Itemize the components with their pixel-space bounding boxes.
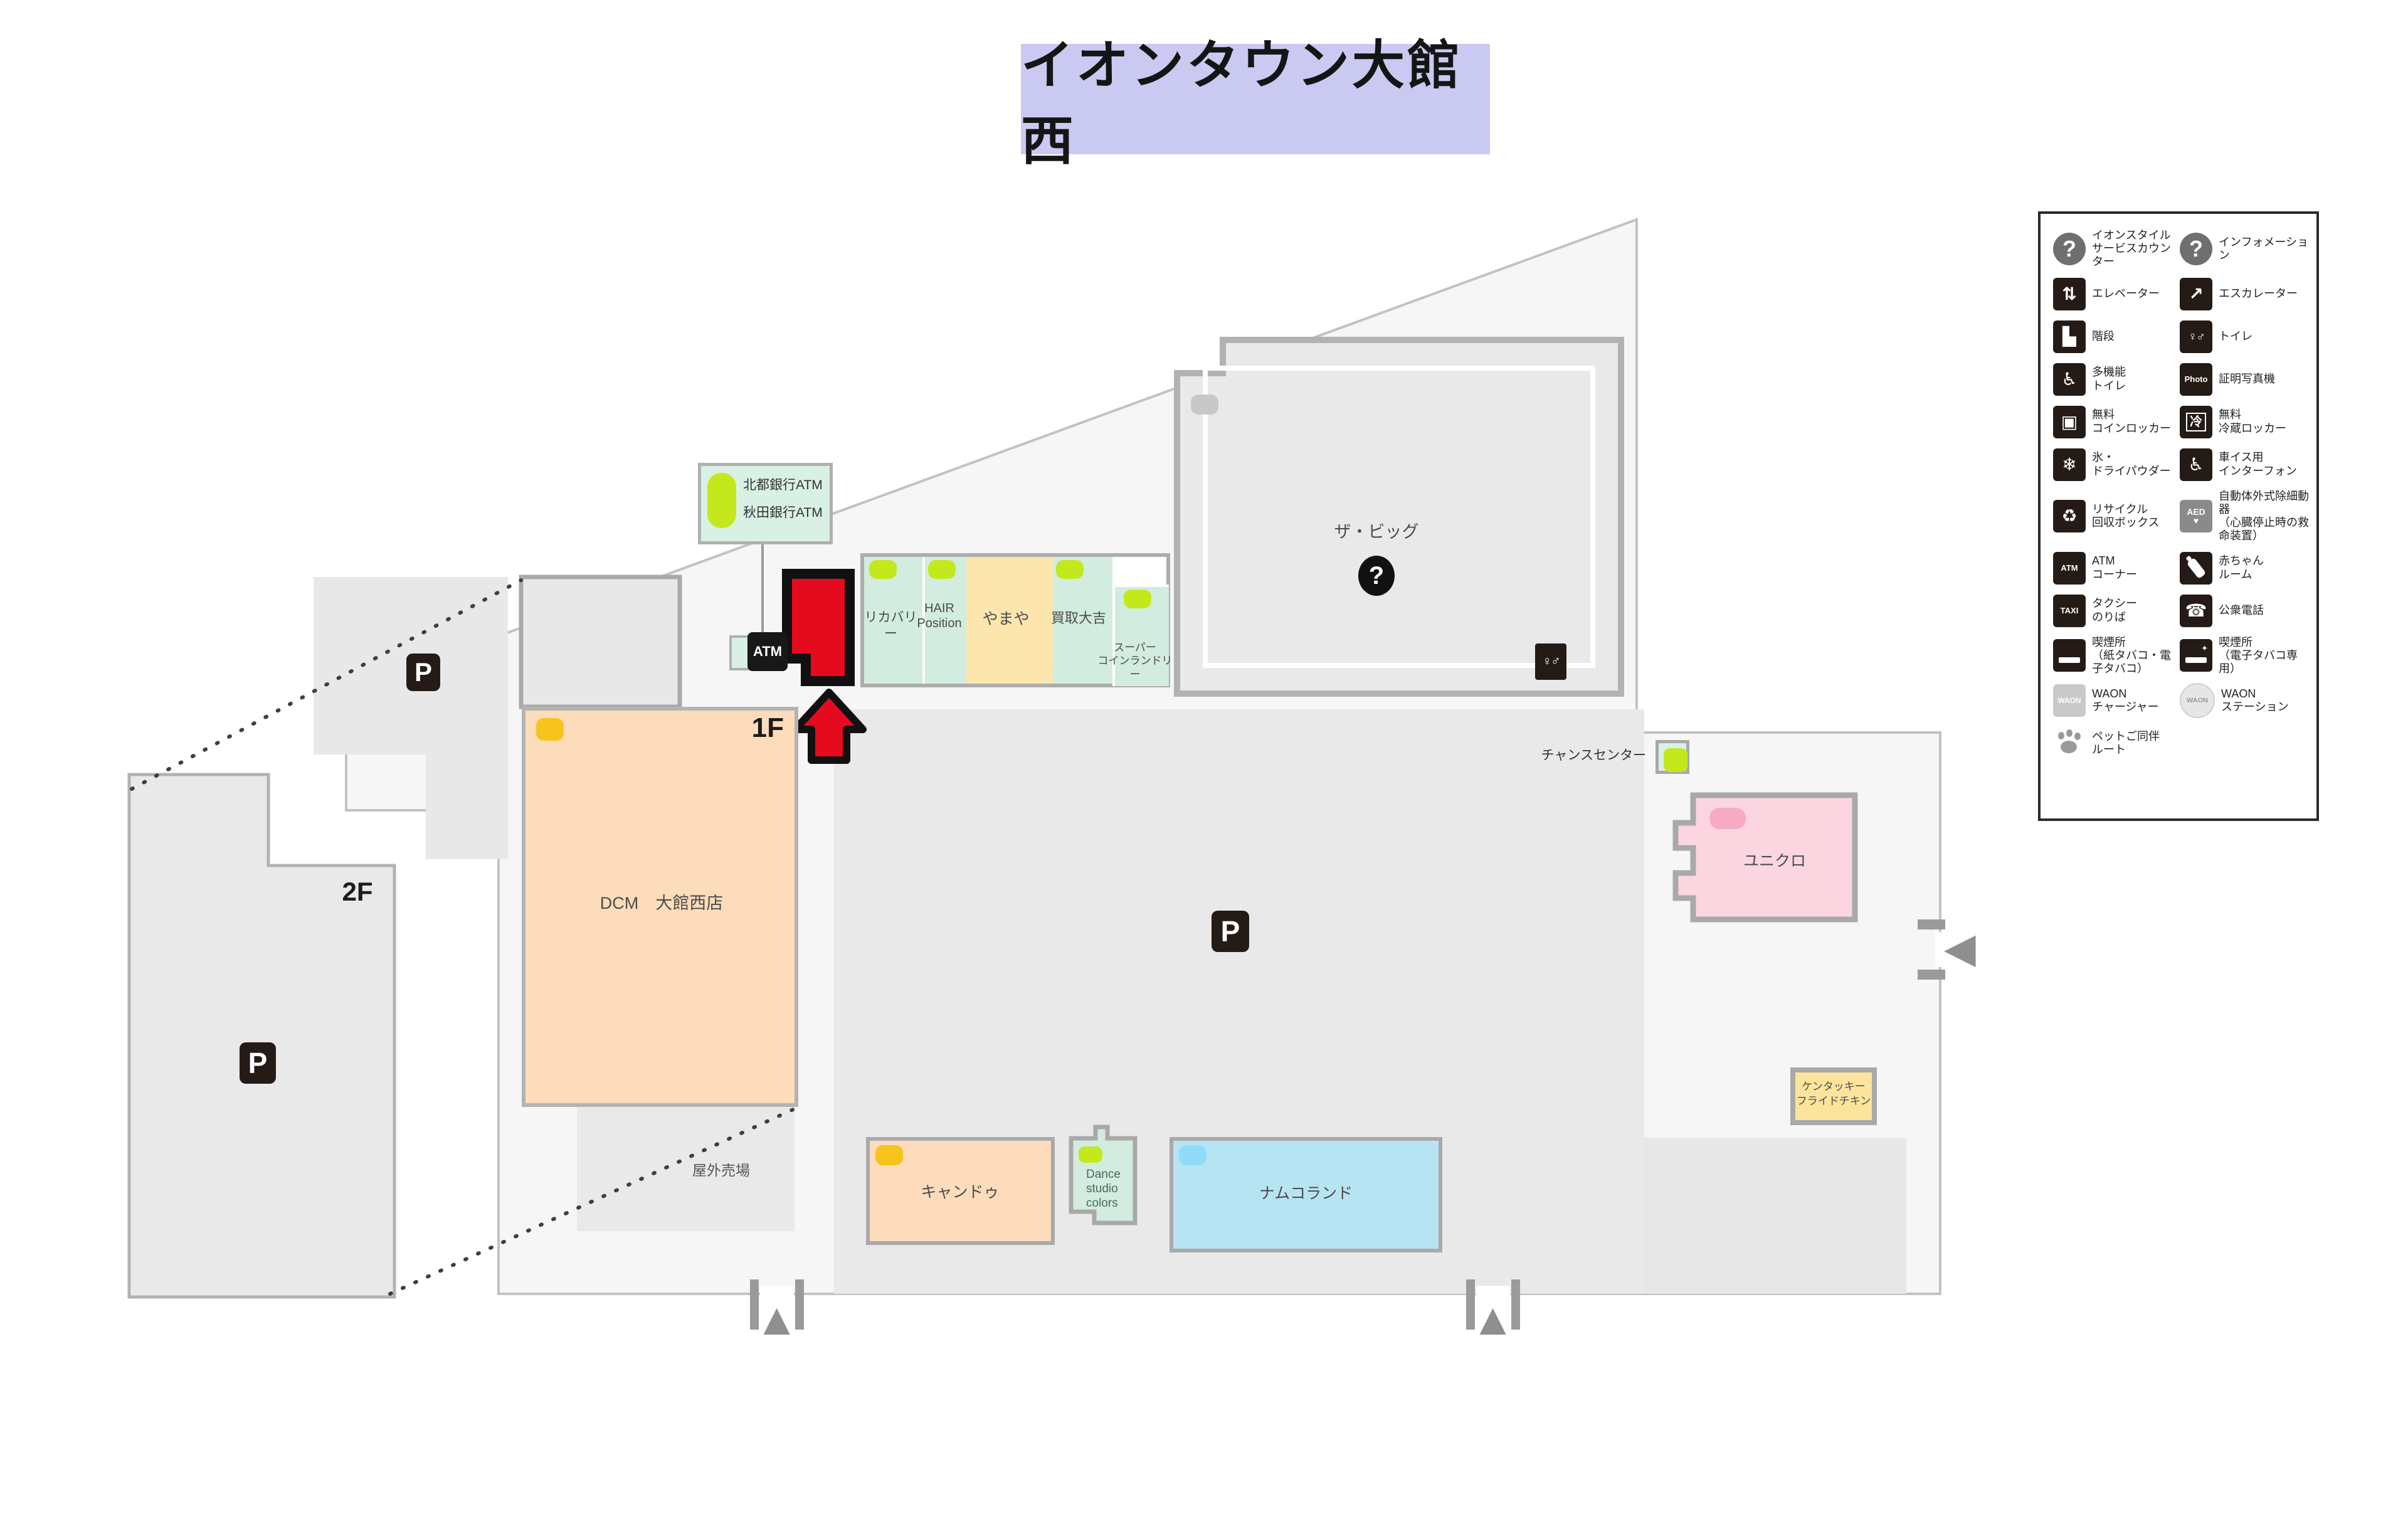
information-icon: ? [2180,233,2212,265]
dance-label-line2: studio [1086,1182,1136,1197]
legend-label-accessible-toilet: 多機能 トイレ [2092,366,2126,392]
recycle-box-icon: ♻ [2053,500,2086,532]
chance-center-label: チャンスセンター [1499,748,1646,764]
legend-item-wheelchair-interphone: ♿車イス用 インターフォン [2180,447,2310,482]
pet-route-icon [2053,727,2086,760]
legend-items: ?イオンスタイル サービスカウンター?インフォメーション⇅エレベーター↗エスカレ… [2053,229,2310,761]
ice-dry-powder-icon: ❄ [2053,448,2086,481]
store-recovery-label: リカバリー [860,610,921,643]
waon-station-icon: WAON [2180,683,2215,718]
legend-item-toilet: ♀♂トイレ [2180,319,2310,354]
parking-icon-central: P [1212,911,1249,952]
store-kaitori-label: 買取大吉 [1047,610,1110,627]
cando-marker [875,1145,903,1165]
atm-callout-text: 北都銀行ATM 秋田銀行ATM [743,472,828,527]
legend-label-stairs: 階段 [2092,330,2115,343]
parking-icon-left: P [406,654,440,691]
legend-label-baby-room: 赤ちゃん ルーム [2219,554,2264,581]
legend-item-free-coin-locker: ▣無料 コインロッカー [2053,405,2176,440]
legend-label-wheelchair-interphone: 車イス用 インターフォン [2219,451,2297,477]
atm-corner-icon: ATM [2053,552,2086,585]
legend-item-baby-room: 赤ちゃん ルーム [2180,551,2310,586]
legend-item-waon-charger: WAONWAON チャージャー [2053,683,2176,718]
chance-center-booth [1655,740,1689,774]
store-laundry-label: スーパー コインランドリー [1097,641,1173,681]
aeon-style-service-counter-icon: ? [2053,233,2086,265]
legend-label-waon-charger: WAON チャージャー [2092,687,2159,714]
smoking-area-icon [2053,639,2086,672]
north-building [521,577,680,707]
legend-label-pet-route: ペットご同伴 ルート [2092,730,2160,756]
legend-label-photo-booth: 証明写真機 [2219,373,2275,386]
atm-bank-line1: 北都銀行ATM [743,472,828,499]
page-title: イオンタウン大館西 [1021,44,1490,154]
parking-2f-building [129,775,394,1297]
legend-label-public-phone: 公衆電話 [2219,604,2264,617]
legend-label-recycle-box: リサイクル 回収ボックス [2092,503,2159,529]
legend-item-aeon-style-service-counter: ?イオンスタイル サービスカウンター [2053,229,2176,269]
entrance-pillar [1918,970,1945,980]
namco-marker [1179,1145,1207,1165]
legend-item-information: ?インフォメーション [2180,229,2310,269]
legend-item-elevator: ⇅エレベーター [2053,277,2176,312]
legend-item-ice-dry-powder: ❄氷・ ドライパウダー [2053,447,2176,482]
store-kfc-label: ケンタッキー フライドチキン [1792,1080,1875,1109]
legend-item-free-cold-locker: 冷無料 冷蔵ロッカー [2180,405,2310,440]
dcm-marker [536,718,564,741]
chance-center-marker [1664,748,1687,772]
free-cold-locker-icon: 冷 [2180,406,2212,438]
legend-label-smoking-area-ecig: 喫煙所 （電子タバコ専用） [2219,636,2310,676]
store-uniqlo-label: ユニクロ [1718,852,1831,871]
free-coin-locker-icon: ▣ [2053,406,2086,438]
baby-room-icon [2180,552,2212,585]
laundry-marker [1124,590,1151,608]
legend-item-smoking-area: 喫煙所 （紙タバコ・電子タバコ） [2053,636,2176,676]
legend-label-aed: 自動体外式除細動器 （心臓停止時の救命装置） [2219,490,2310,543]
waon-charger-icon: WAON [2053,684,2086,717]
legend-item-aed: AED ♥自動体外式除細動器 （心臓停止時の救命装置） [2180,490,2310,543]
legend-item-escalator: ↗エスカレーター [2180,277,2310,312]
outdoor-sales-label: 屋外売場 [646,1162,796,1180]
entrance-arrow-east: ◀ [1944,927,1976,968]
legend-label-information: インフォメーション [2219,236,2310,262]
taxi-stand-icon: TAXI [2053,595,2086,627]
legend-item-waon-station: WAONWAON ステーション [2180,683,2310,718]
wheelchair-interphone-icon: ♿ [2180,448,2212,481]
hair-position-marker [928,560,956,579]
store-hair-label: HAIR Position [916,601,963,631]
entrance-arrow-south2: ▲ [1471,1297,1515,1342]
photo-booth-icon: Photo [2180,363,2212,396]
store-the-big-label: ザ・ビッグ [1301,522,1452,543]
smoking-area-ecig-icon: ✦ [2180,639,2212,672]
legend-item-pet-route: ペットご同伴 ルート [2053,726,2176,761]
uniqlo-marker [1709,808,1746,829]
escalator-icon: ↗ [2180,278,2212,310]
toilet-icon: ♀♂ [2180,320,2212,353]
left-parking-area [314,577,508,859]
store-dance-label: Dance studio colors [1086,1168,1136,1210]
legend-item-photo-booth: Photo証明写真機 [2180,362,2310,397]
accessible-toilet-icon: ♿ [2053,363,2086,396]
public-phone-icon: ☎ [2180,595,2212,627]
legend-item-atm-corner: ATMATM コーナー [2053,551,2176,586]
parking-icon-2f: P [240,1042,276,1084]
stairs-icon: ▙ [2053,320,2086,353]
recovery-marker [869,560,897,579]
legend-item-taxi-stand: TAXIタクシー のりば [2053,593,2176,628]
floor-2f-label: 2F [332,876,383,909]
legend-item-stairs: ▙階段 [2053,319,2176,354]
legend-label-atm-corner: ATM コーナー [2092,554,2137,581]
store-dcm-label: DCM 大館西店 [549,893,774,914]
store-yamaya-label: やまや [963,610,1049,629]
kaitori-marker [1056,560,1084,579]
legend-label-smoking-area: 喫煙所 （紙タバコ・電子タバコ） [2092,636,2176,676]
legend-label-free-coin-locker: 無料 コインロッカー [2092,408,2171,435]
legend-item-smoking-area-ecig: ✦喫煙所 （電子タバコ専用） [2180,636,2310,676]
the-big-block [1177,340,1621,694]
hair-label-line1: HAIR [916,601,963,616]
service-counter-icon: ? [1358,556,1395,596]
the-big-marker [1191,394,1218,415]
aed-icon: AED ♥ [2180,500,2212,532]
legend-label-waon-station: WAON ステーション [2221,687,2289,714]
laundry-label-line2: コインランドリー [1097,654,1173,681]
floor-1f-label: 1F [721,711,784,745]
legend-label-taxi-stand: タクシー のりば [2092,597,2137,623]
toilet-icon: ♀♂ [1535,643,1566,680]
laundry-label-line1: スーパー [1097,641,1173,654]
legend-label-escalator: エスカレーター [2219,287,2298,300]
legend-item-public-phone: ☎公衆電話 [2180,593,2310,628]
atm-callout-marker [707,473,736,528]
legend-label-aeon-style-service-counter: イオンスタイル サービスカウンター [2092,229,2176,269]
legend-label-toilet: トイレ [2219,330,2252,343]
legend: ?イオンスタイル サービスカウンター?インフォメーション⇅エレベーター↗エスカレ… [2038,211,2319,821]
floor-map-page: イオンタウン大館西 1F DCM 大館西店 リカバリー HAIR Positio… [0,0,2408,1519]
store-namco-label: ナムコランド [1173,1184,1439,1204]
atm-icon: ATM [747,632,788,671]
kfc-label-line1: ケンタッキー [1792,1080,1875,1094]
legend-label-ice-dry-powder: 氷・ ドライパウダー [2092,451,2171,477]
legend-label-free-cold-locker: 無料 冷蔵ロッカー [2219,408,2286,435]
kfc-label-line2: フライドチキン [1792,1094,1875,1109]
legend-item-accessible-toilet: ♿多機能 トイレ [2053,362,2176,397]
atm-bank-line2: 秋田銀行ATM [743,499,828,527]
entrance-pillar [1918,919,1945,929]
dance-label-line1: Dance [1086,1168,1136,1182]
legend-item-recycle-box: ♻リサイクル 回収ボックス [2053,490,2176,543]
elevator-icon: ⇅ [2053,278,2086,310]
legend-label-elevator: エレベーター [2092,287,2160,300]
store-cando-label: キャンドゥ [869,1183,1051,1202]
entrance-arrow-south1: ▲ [754,1297,799,1342]
bottom-right-block [1644,1138,1906,1294]
hair-label-line2: Position [916,616,963,631]
dance-studio-marker [1079,1146,1102,1163]
dance-label-line3: colors [1086,1197,1136,1211]
